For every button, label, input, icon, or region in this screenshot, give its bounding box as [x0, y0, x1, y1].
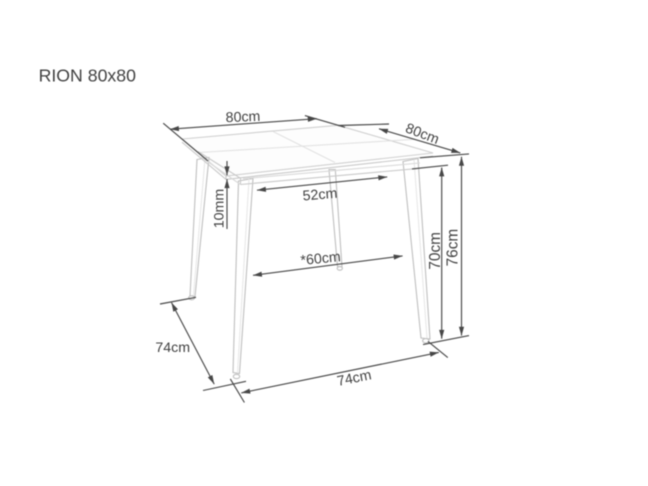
svg-text:74cm: 74cm [155, 340, 190, 356]
svg-text:RION 80x80: RION 80x80 [39, 65, 136, 85]
svg-text:52cm: 52cm [302, 186, 338, 205]
svg-text:76cm: 76cm [445, 229, 462, 267]
svg-text:10mm: 10mm [212, 189, 228, 228]
svg-text:80cm: 80cm [225, 109, 260, 126]
svg-text:70cm: 70cm [427, 232, 444, 270]
